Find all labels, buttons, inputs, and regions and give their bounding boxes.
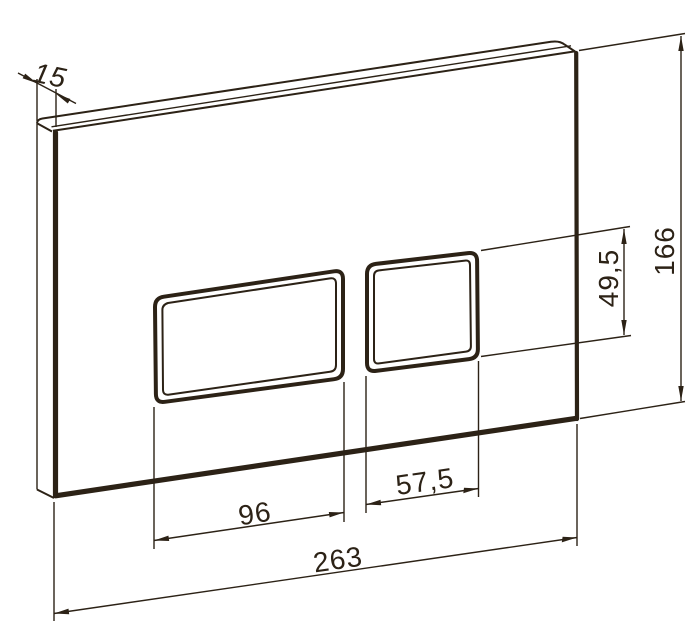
plate-side-bottom-edge bbox=[37, 490, 54, 499]
arrowhead bbox=[678, 36, 683, 51]
dimension-plate-height: 166 bbox=[579, 34, 685, 419]
dimension-label-button-height: 49,5 bbox=[593, 249, 624, 308]
dimension-label-left-button-width: 96 bbox=[236, 496, 273, 532]
arrowhead bbox=[621, 320, 626, 335]
arrowhead bbox=[463, 488, 478, 493]
arrowhead bbox=[678, 386, 683, 401]
arrowhead bbox=[329, 512, 344, 517]
plate-right-edge bbox=[576, 53, 577, 419]
arrowhead bbox=[621, 229, 626, 244]
technical-drawing-canvas: 15 166 49,5 96 57,5 bbox=[0, 0, 700, 634]
extension-line bbox=[579, 34, 685, 51]
flush-plate-drawing: 15 166 49,5 96 57,5 bbox=[0, 0, 700, 634]
arrowhead bbox=[56, 94, 70, 104]
plate-body bbox=[37, 41, 577, 498]
plate-side-top-edge bbox=[38, 124, 53, 132]
arrowhead bbox=[154, 536, 169, 541]
dimension-label-right-button-width: 57,5 bbox=[394, 462, 456, 501]
dimension-label-plate-height: 166 bbox=[649, 226, 680, 276]
dimension-thickness: 15 bbox=[18, 57, 76, 127]
right-flush-button bbox=[367, 253, 478, 371]
arrowhead bbox=[366, 500, 381, 505]
plate-side-face bbox=[37, 123, 54, 498]
arrowhead bbox=[562, 537, 577, 543]
dimension-label-plate-width: 263 bbox=[311, 541, 365, 579]
arrowhead bbox=[54, 609, 69, 615]
extension-line bbox=[580, 402, 685, 419]
